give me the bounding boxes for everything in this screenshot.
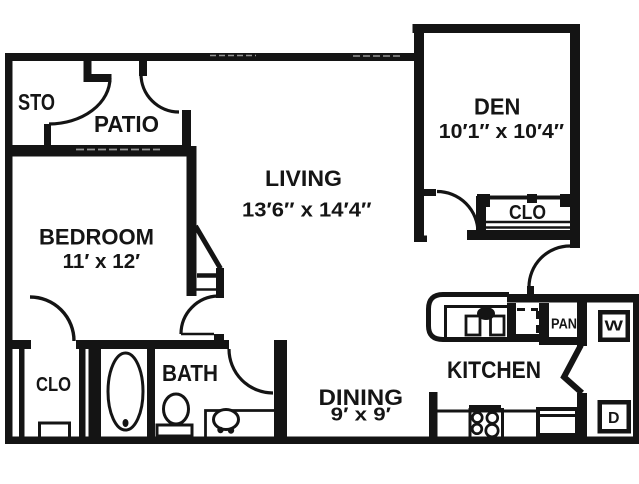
svg-text:13′6″ x 14′4″: 13′6″ x 14′4″	[242, 200, 372, 222]
svg-text:KITCHEN: KITCHEN	[447, 357, 541, 384]
svg-text:PAN: PAN	[551, 316, 577, 333]
svg-text:BEDROOM: BEDROOM	[39, 225, 154, 250]
svg-text:W: W	[605, 318, 625, 335]
svg-text:CLO: CLO	[36, 374, 71, 396]
svg-text:9′ x 9′: 9′ x 9′	[331, 404, 392, 425]
svg-text:LIVING: LIVING	[265, 166, 342, 191]
svg-text:CLO: CLO	[509, 202, 546, 224]
svg-text:11′ x 12′: 11′ x 12′	[63, 251, 141, 273]
svg-text:10′1″ x 10′4″: 10′1″ x 10′4″	[439, 121, 565, 143]
svg-text:BATH: BATH	[162, 360, 218, 386]
svg-text:DEN: DEN	[474, 94, 520, 120]
svg-text:STO: STO	[18, 89, 55, 115]
svg-text:D: D	[608, 410, 620, 427]
svg-text:PATIO: PATIO	[94, 111, 159, 137]
